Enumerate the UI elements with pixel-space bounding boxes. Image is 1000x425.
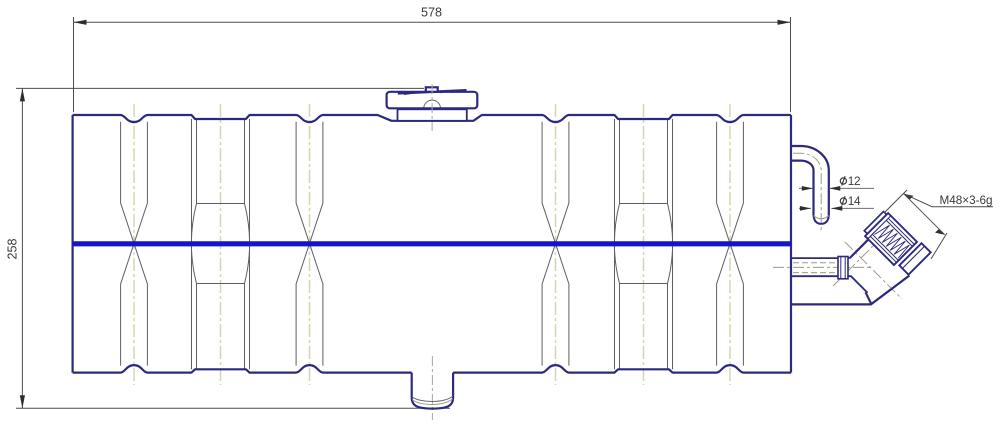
svg-text:578: 578	[421, 6, 442, 20]
svg-text:M48×3-6g: M48×3-6g	[940, 193, 993, 207]
svg-text:14: 14	[848, 194, 861, 208]
svg-text:12: 12	[848, 174, 861, 188]
svg-text:258: 258	[6, 238, 20, 259]
